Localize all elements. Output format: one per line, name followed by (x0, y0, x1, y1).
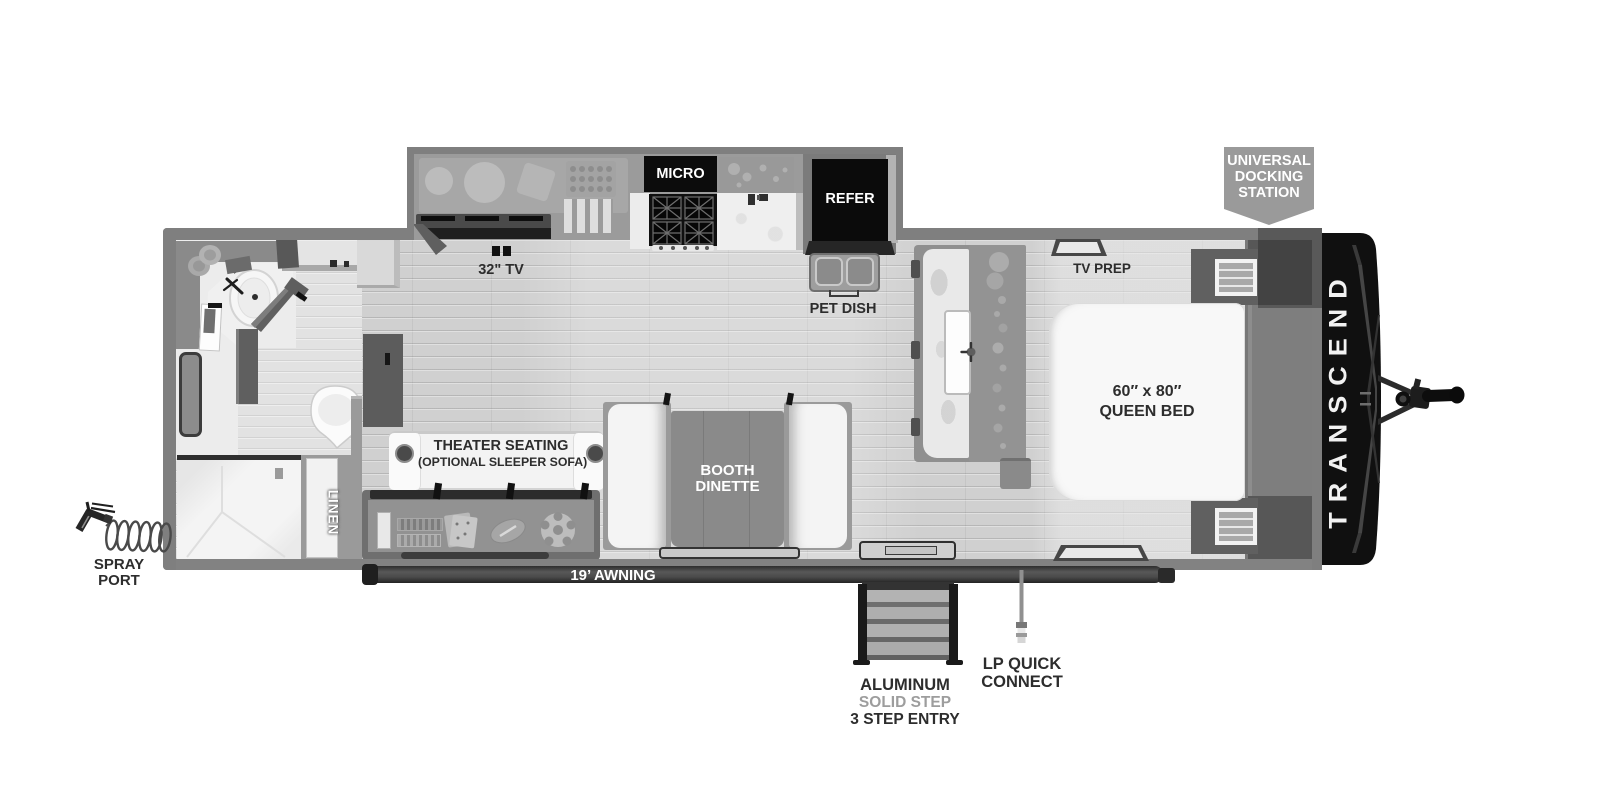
svg-text:STATION: STATION (1238, 185, 1299, 201)
svg-text:UNIVERSAL: UNIVERSAL (1227, 153, 1311, 169)
svg-text:DOCKING: DOCKING (1235, 169, 1303, 185)
